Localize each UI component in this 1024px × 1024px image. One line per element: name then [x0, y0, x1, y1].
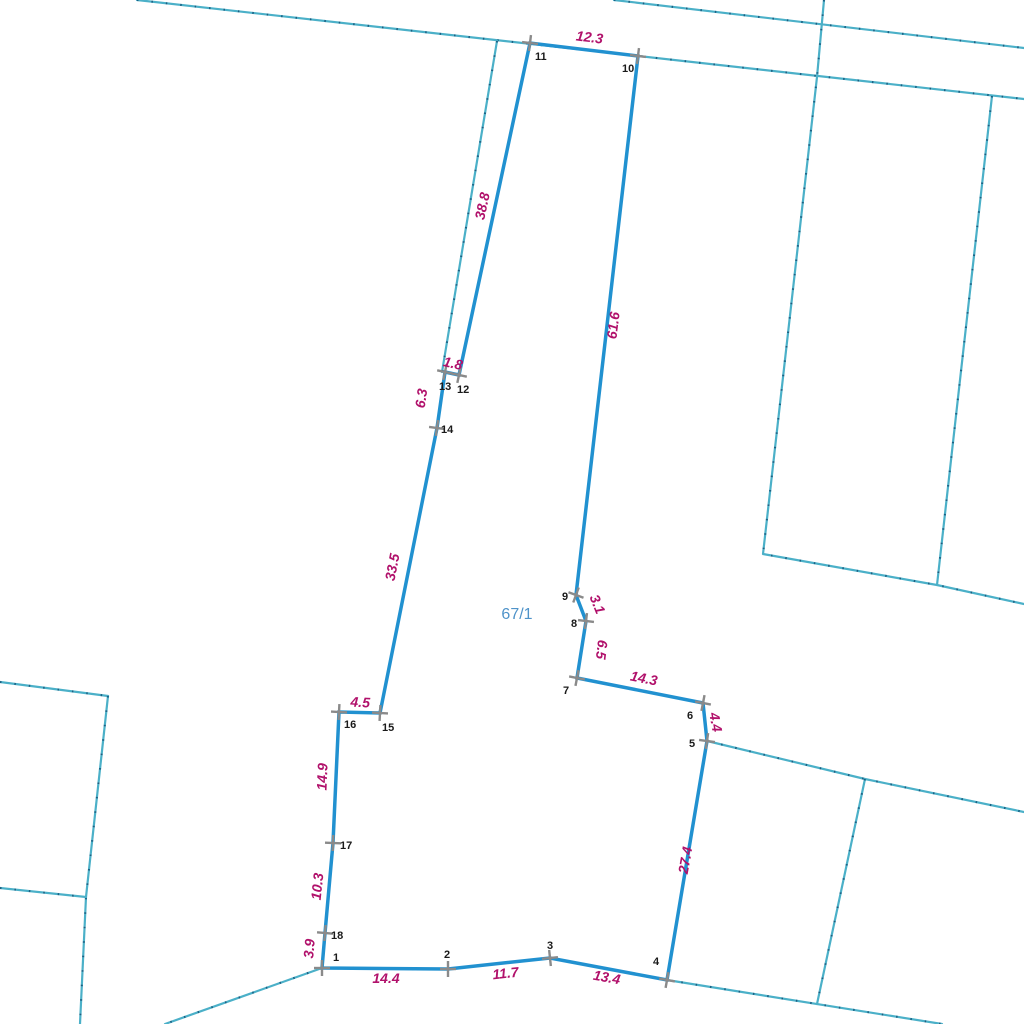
vertex-number-18: 18: [331, 930, 343, 942]
vertex-number-9: 9: [562, 591, 568, 603]
edge-length-label-7-8: 6.5: [593, 639, 611, 660]
vertex-number-16: 16: [344, 719, 356, 731]
edge-length-label-13-14: 6.3: [412, 387, 431, 409]
edge-length-label-3-4: 13.4: [592, 967, 622, 988]
boundary-line-specks-right-block-west-side: [763, 0, 1024, 604]
boundary-line-southeast-cross-line: [817, 779, 865, 1004]
vertex-tick-arm-v: [575, 670, 578, 686]
vertex-number-8: 8: [571, 618, 577, 630]
boundary-line-specks-west-parcel-side: [80, 696, 108, 1024]
boundary-line-right-block-west-side: [763, 0, 1024, 604]
edge-length-label-6-7: 14.3: [629, 668, 659, 689]
vertex-number-15: 15: [382, 722, 394, 734]
edge-length-label-5-6: 4.4: [706, 710, 725, 733]
edge-length-label-14-15: 33.5: [382, 552, 403, 582]
boundary-line-south-line-from-4: [667, 980, 942, 1024]
edge-length-label-1-2: 14.4: [372, 970, 399, 986]
edge-length-label-9-10: 61.6: [603, 311, 622, 340]
vertex-tick-15: [372, 705, 389, 722]
labels-layer: 12345678910111213141516171814.411.713.42…: [300, 27, 725, 987]
vertex-tick-arm-v: [339, 704, 340, 720]
boundary-line-southwest-line-from-1: [165, 968, 322, 1024]
vertex-tick-11: [521, 34, 539, 52]
vertex-tick-5: [698, 732, 716, 750]
boundary-line-upper-right-line: [614, 0, 1024, 48]
cadastral-map: 12345678910111213141516171814.411.713.42…: [0, 0, 1024, 1024]
vertex-number-14: 14: [441, 424, 454, 436]
vertex-number-3: 3: [547, 940, 553, 952]
vertex-tick-arm-v: [380, 705, 381, 721]
vertex-tick-8: [577, 612, 595, 630]
vertex-tick-2: [440, 961, 456, 977]
vertex-number-4: 4: [653, 956, 660, 968]
vertex-number-11: 11: [535, 51, 547, 63]
vertex-number-6: 6: [687, 710, 693, 722]
vertex-tick-16: [331, 704, 348, 721]
edge-length-label-2-3: 11.7: [492, 964, 521, 983]
vertex-tick-arm-v: [324, 925, 325, 941]
vertex-tick-arm-v: [549, 950, 551, 966]
parcel-boundary-layer: [322, 43, 707, 980]
vertex-number-1: 1: [333, 952, 339, 964]
vertex-tick-arm-v: [529, 35, 531, 51]
edge-length-label-4-5: 27.4: [675, 845, 696, 876]
boundary-line-west-parcel-side: [80, 696, 108, 1024]
vertex-number-12: 12: [457, 384, 469, 396]
edge-length-label-8-9: 3.1: [587, 592, 609, 616]
edge-length-label-17-18: 10.3: [308, 872, 327, 901]
neighbor-boundaries-layer: [0, 0, 1024, 1024]
vertex-ticks-layer: [314, 34, 716, 989]
edge-length-label-15-16: 4.5: [349, 693, 370, 710]
parcel-number-label: 67/1: [501, 606, 532, 623]
parcel-boundary: [322, 43, 707, 980]
vertex-number-2: 2: [444, 949, 450, 961]
vertex-number-17: 17: [340, 840, 352, 852]
vertex-tick-17: [325, 835, 342, 852]
vertex-number-10: 10: [622, 63, 634, 75]
vertex-tick-4: [658, 971, 677, 990]
boundary-line-west-parcel-top: [0, 682, 108, 696]
edge-length-label-11-12: 38.8: [471, 191, 492, 221]
vertex-tick-arm-v: [666, 972, 669, 988]
vertex-number-13: 13: [439, 381, 451, 393]
vertex-number-7: 7: [563, 685, 569, 697]
vertex-tick-1: [314, 960, 330, 976]
edge-length-label-10-11: 12.3: [575, 27, 604, 46]
map-canvas[interactable]: 12345678910111213141516171814.411.713.42…: [0, 0, 1024, 1024]
edge-length-label-18-1: 3.9: [300, 938, 318, 959]
vertex-tick-arm-v: [333, 835, 334, 851]
edge-length-label-16-17: 14.9: [314, 763, 331, 791]
vertex-number-5: 5: [689, 738, 695, 750]
